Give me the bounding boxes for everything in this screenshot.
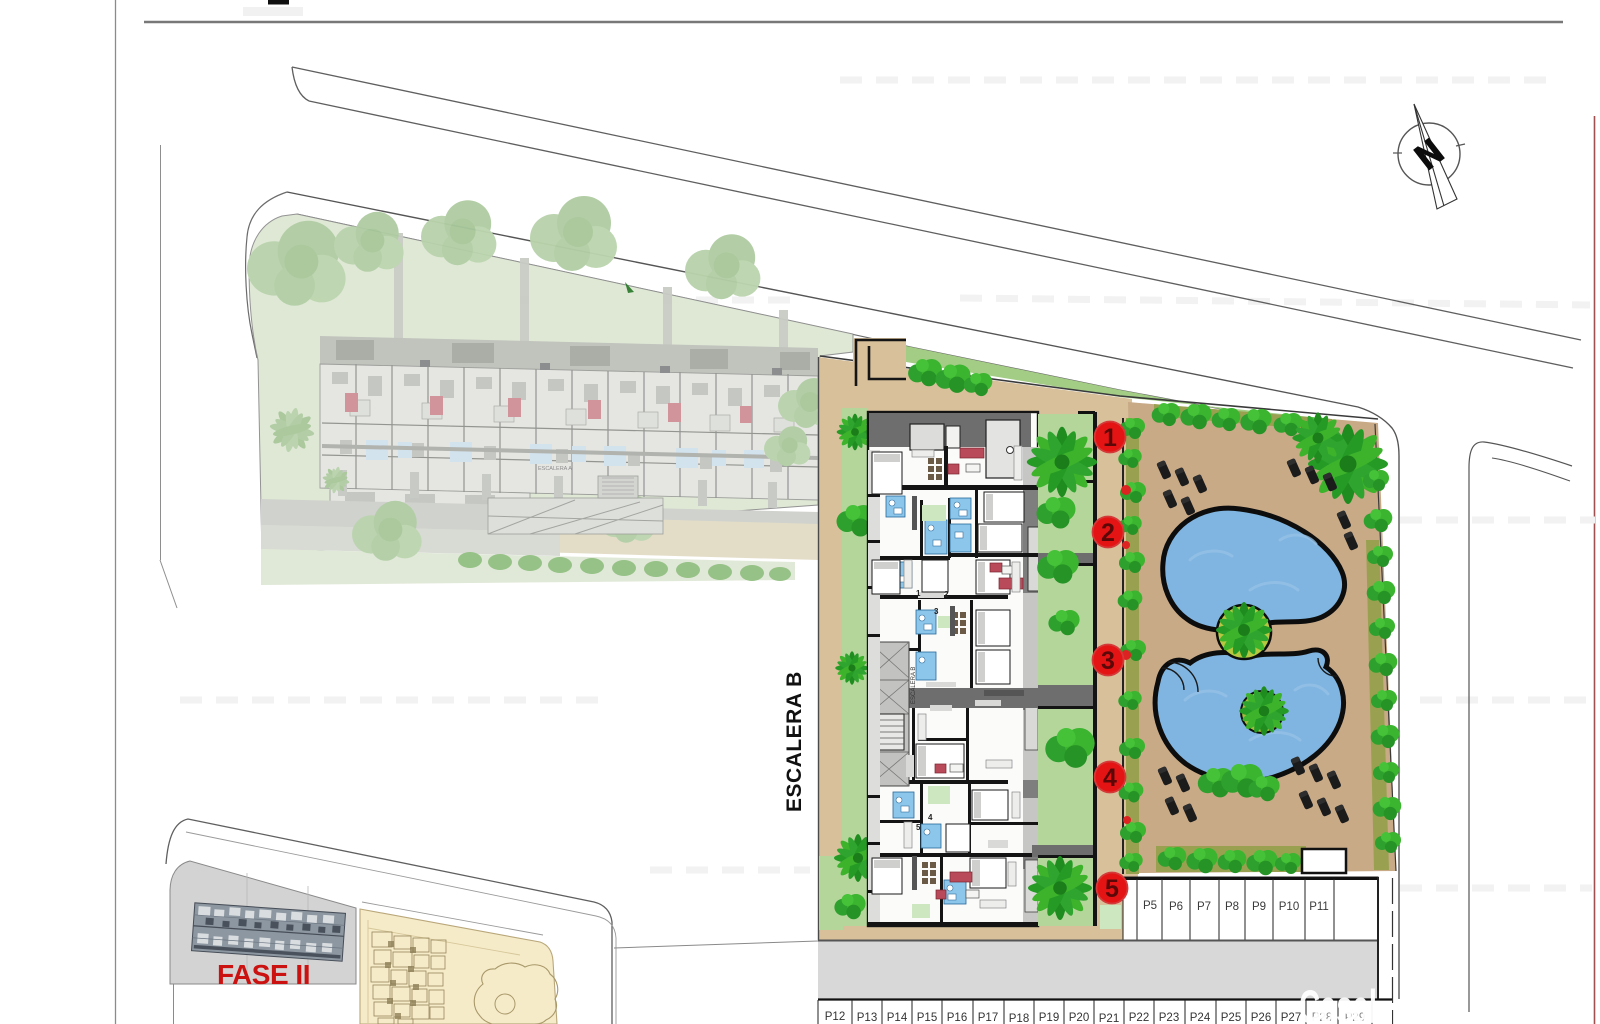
svg-text:P9: P9	[1252, 901, 1266, 913]
svg-text:3: 3	[934, 607, 939, 616]
svg-text:P10: P10	[1279, 901, 1299, 913]
svg-text:4: 4	[1103, 764, 1117, 792]
svg-text:P7: P7	[1197, 901, 1211, 913]
svg-text:P20: P20	[1069, 1012, 1089, 1024]
svg-text:5: 5	[916, 823, 921, 832]
svg-text:ESCALERA A: ESCALERA A	[538, 466, 572, 472]
svg-text:P22: P22	[1129, 1012, 1149, 1024]
svg-text:P19: P19	[1039, 1012, 1059, 1024]
svg-text:P6: P6	[1169, 901, 1183, 913]
svg-text:P26: P26	[1251, 1012, 1271, 1024]
svg-text:P23: P23	[1159, 1012, 1179, 1024]
svg-text:Casal: Casal	[1299, 980, 1377, 1024]
svg-text:P8: P8	[1225, 901, 1239, 913]
svg-text:ESCALERA B: ESCALERA B	[783, 671, 806, 812]
svg-text:P21: P21	[1099, 1013, 1119, 1024]
svg-text:P18: P18	[1009, 1013, 1029, 1024]
svg-text:4: 4	[928, 813, 933, 822]
svg-text:P14: P14	[887, 1012, 908, 1024]
svg-text:P12: P12	[825, 1011, 845, 1023]
svg-text:2: 2	[1101, 519, 1115, 547]
svg-text:P17: P17	[978, 1012, 998, 1024]
svg-text:P25: P25	[1221, 1012, 1241, 1024]
svg-text:3: 3	[1101, 647, 1115, 675]
svg-text:P5: P5	[1143, 900, 1157, 912]
svg-text:P24: P24	[1190, 1012, 1211, 1024]
svg-text:P11: P11	[1309, 901, 1329, 913]
svg-text:FASE II: FASE II	[217, 959, 310, 990]
svg-text:P16: P16	[947, 1012, 967, 1024]
svg-text:5: 5	[1105, 875, 1119, 903]
svg-text:2: 2	[944, 590, 949, 599]
svg-text:1: 1	[916, 589, 921, 598]
svg-text:P13: P13	[857, 1012, 877, 1024]
svg-text:1: 1	[1103, 424, 1117, 452]
svg-text:P15: P15	[917, 1012, 937, 1024]
